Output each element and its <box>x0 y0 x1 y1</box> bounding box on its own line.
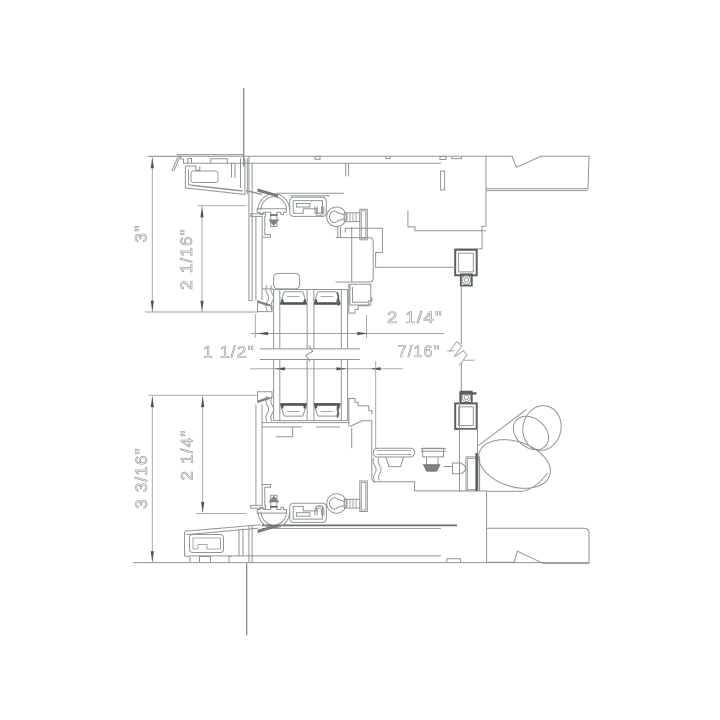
svg-text:2 1/4": 2 1/4" <box>387 308 443 327</box>
svg-text:3": 3" <box>132 225 151 243</box>
svg-text:2 1/16": 2 1/16" <box>177 228 196 290</box>
svg-text:7/16": 7/16" <box>398 342 441 361</box>
svg-text:1 1/2": 1 1/2" <box>203 343 255 362</box>
svg-text:3 3/16": 3 3/16" <box>132 447 151 509</box>
svg-text:2 1/4": 2 1/4" <box>178 429 197 480</box>
